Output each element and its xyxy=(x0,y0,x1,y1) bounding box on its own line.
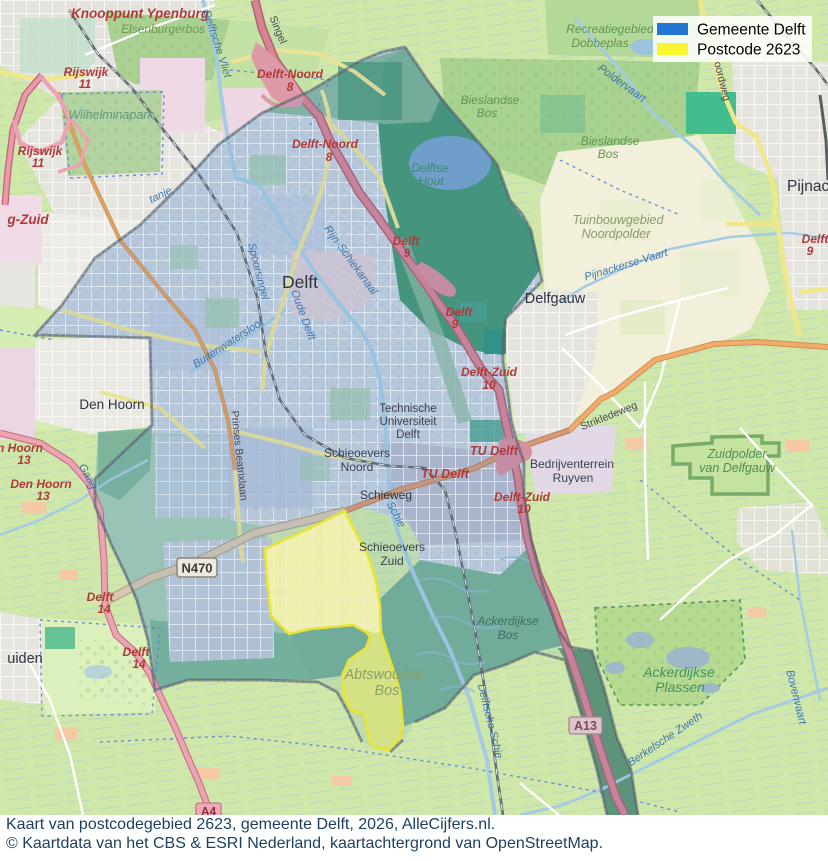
svg-text:Hout: Hout xyxy=(418,174,444,188)
svg-text:Schieoevers: Schieoevers xyxy=(324,446,390,460)
svg-text:9: 9 xyxy=(452,317,459,331)
svg-text:Delft-Zuid: Delft-Zuid xyxy=(461,365,518,379)
svg-text:Den Hoorn: Den Hoorn xyxy=(79,397,144,412)
svg-text:Delft-Noord: Delft-Noord xyxy=(292,137,359,151)
svg-text:Delfgauw: Delfgauw xyxy=(525,291,586,307)
svg-text:14: 14 xyxy=(97,602,111,616)
svg-text:Bos: Bos xyxy=(477,106,498,120)
svg-text:Technische: Technische xyxy=(379,403,437,415)
svg-text:11: 11 xyxy=(32,156,45,170)
svg-text:Delft-Noord: Delft-Noord xyxy=(257,67,324,81)
svg-text:Plassen: Plassen xyxy=(655,679,705,695)
svg-text:10: 10 xyxy=(482,378,496,392)
svg-text:Pijnack: Pijnack xyxy=(787,178,828,195)
svg-text:Postcode 2623: Postcode 2623 xyxy=(697,42,800,59)
svg-text:Bieslandse: Bieslandse xyxy=(461,93,520,107)
svg-text:Ruyven: Ruyven xyxy=(553,471,594,485)
svg-text:9: 9 xyxy=(404,246,411,260)
svg-text:Noordpolder: Noordpolder xyxy=(582,227,652,241)
svg-text:Knooppunt Ypenburg: Knooppunt Ypenburg xyxy=(71,6,210,21)
svg-text:TU Delft: TU Delft xyxy=(470,444,519,458)
svg-text:Delftse: Delftse xyxy=(411,161,449,175)
svg-text:Tuinbouwgebied: Tuinbouwgebied xyxy=(573,213,665,227)
svg-text:13: 13 xyxy=(17,453,31,467)
svg-text:9: 9 xyxy=(807,244,814,258)
svg-text:Zuidpolder: Zuidpolder xyxy=(706,447,767,461)
svg-text:Elsenburgerbos: Elsenburgerbos xyxy=(121,22,205,36)
svg-text:13: 13 xyxy=(36,489,50,503)
svg-text:Bedrijventerrein: Bedrijventerrein xyxy=(530,457,614,471)
svg-text:N470: N470 xyxy=(181,561,212,576)
svg-text:Schieoevers: Schieoevers xyxy=(359,540,425,554)
svg-text:Delft: Delft xyxy=(446,305,474,319)
svg-text:Delft: Delft xyxy=(802,232,828,246)
svg-text:14: 14 xyxy=(132,657,146,671)
svg-text:11: 11 xyxy=(79,77,92,91)
svg-text:Recreatiegebied: Recreatiegebied xyxy=(566,22,654,36)
svg-text:Bos: Bos xyxy=(498,628,519,642)
svg-text:van Delfgauw: van Delfgauw xyxy=(699,461,776,475)
svg-text:Bos: Bos xyxy=(598,147,619,161)
svg-text:8: 8 xyxy=(326,150,333,164)
svg-text:Abtswoudse: Abtswoudse xyxy=(344,667,424,683)
svg-text:Bos: Bos xyxy=(375,683,400,699)
svg-text:Ackerdijkse: Ackerdijkse xyxy=(642,664,715,680)
svg-text:Schieweg: Schieweg xyxy=(360,488,412,502)
svg-text:Wilhelminapark: Wilhelminapark xyxy=(68,108,154,122)
svg-text:TU Delft: TU Delft xyxy=(421,467,470,481)
svg-text:g-Zuid: g-Zuid xyxy=(6,212,49,227)
svg-text:Zuid: Zuid xyxy=(380,554,403,568)
svg-text:A13: A13 xyxy=(574,719,597,733)
svg-text:Dobbeplas: Dobbeplas xyxy=(571,36,628,50)
svg-text:uiden: uiden xyxy=(7,651,42,667)
svg-text:A4: A4 xyxy=(201,805,217,816)
svg-text:8: 8 xyxy=(287,80,294,94)
svg-text:Delft: Delft xyxy=(396,429,420,441)
svg-text:Noord: Noord xyxy=(341,460,374,474)
svg-text:Universiteit: Universiteit xyxy=(380,416,438,428)
svg-text:Ackerdijkse: Ackerdijkse xyxy=(476,614,539,628)
svg-text:Bieslandse: Bieslandse xyxy=(581,134,640,148)
svg-text:Gemeente Delft: Gemeente Delft xyxy=(697,22,806,39)
svg-text:10: 10 xyxy=(517,502,531,516)
